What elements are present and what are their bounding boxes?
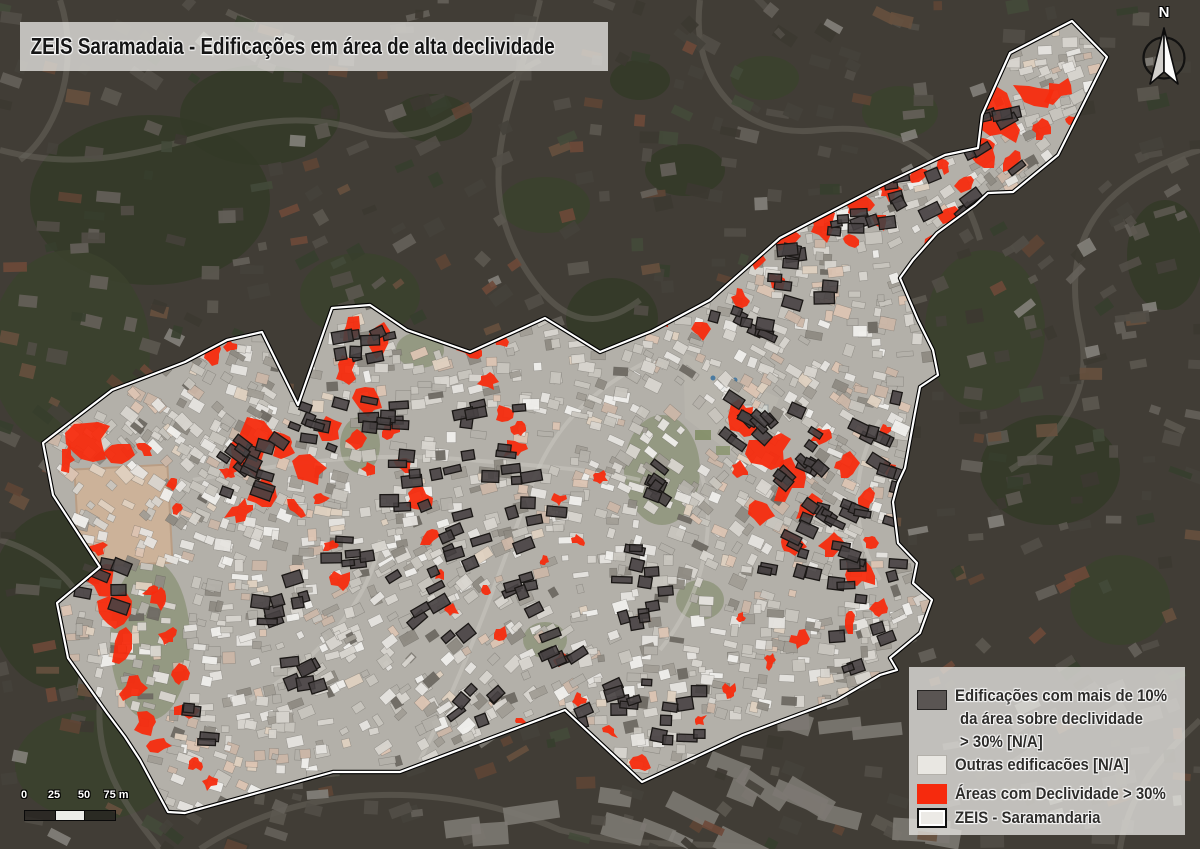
map-title: ZEIS Saramadaia - Edificações em área de… bbox=[20, 33, 555, 60]
scale-segment-dark-1 bbox=[25, 811, 55, 820]
map-document: ZEIS Saramadaia - Edificações em área de… bbox=[0, 0, 1200, 849]
legend: Edificações com mais de 10% da área sobr… bbox=[909, 667, 1185, 835]
scale-label-75m: 75 m bbox=[103, 789, 128, 801]
scale-label-0: 0 bbox=[21, 789, 27, 801]
legend-swatch-dark-buildings bbox=[917, 690, 947, 710]
scale-bar-graphic bbox=[24, 810, 116, 821]
map-title-box: ZEIS Saramadaia - Edificações em área de… bbox=[20, 22, 608, 71]
legend-item-other-buildings: Outras edificacões [N/A] bbox=[917, 755, 1152, 775]
scale-segment-dark-2 bbox=[85, 811, 115, 820]
legend-swatch-steep-areas bbox=[917, 784, 947, 804]
scale-segment-light bbox=[55, 811, 85, 820]
legend-label-dark-line3: > 30% [N/A] bbox=[960, 730, 1043, 753]
scale-label-50: 50 bbox=[78, 789, 90, 801]
north-arrow-icon bbox=[1136, 20, 1192, 94]
legend-label-dark-line1: Edificações com mais de 10% bbox=[955, 684, 1167, 707]
legend-item-steep-areas: Áreas com Declividade > 30% bbox=[917, 784, 1195, 804]
scale-label-25: 25 bbox=[48, 789, 60, 801]
legend-swatch-zeis-boundary bbox=[917, 808, 947, 828]
north-label: N bbox=[1159, 4, 1170, 21]
scale-bar: 0 25 50 75 m bbox=[14, 788, 144, 826]
north-arrow: N bbox=[1136, 6, 1192, 98]
legend-label-other-buildings: Outras edificacões [N/A] bbox=[955, 755, 1129, 775]
legend-item-zeis-boundary: ZEIS - Saramandaria bbox=[917, 808, 1120, 828]
legend-label-steep-areas: Áreas com Declividade > 30% bbox=[955, 784, 1166, 804]
legend-label-dark-line2: da área sobre declividade bbox=[960, 707, 1143, 730]
legend-swatch-other-buildings bbox=[917, 755, 947, 775]
legend-item-dark-buildings: Edificações com mais de 10% da área sobr… bbox=[917, 684, 1196, 753]
legend-label-zeis-boundary: ZEIS - Saramandaria bbox=[955, 808, 1101, 828]
